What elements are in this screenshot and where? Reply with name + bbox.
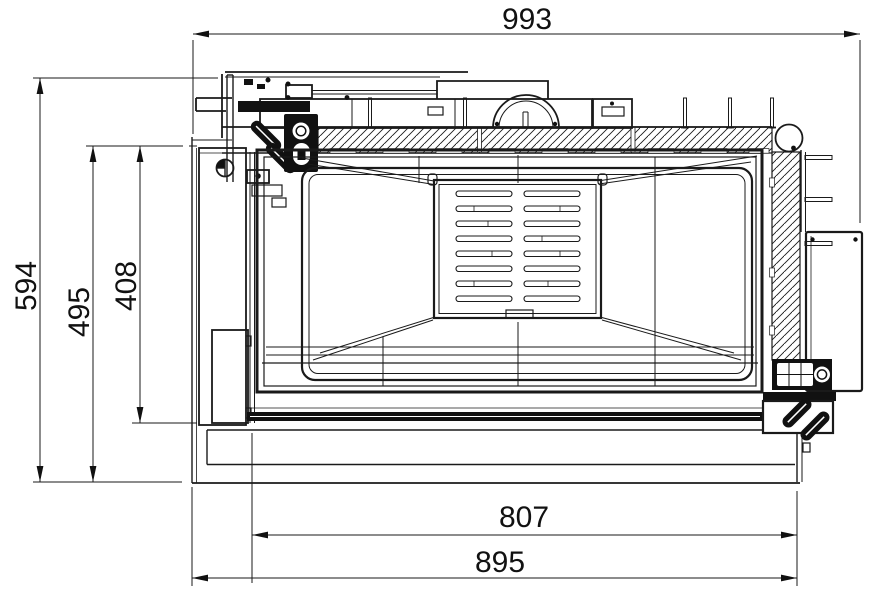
- arrowhead-left: [193, 31, 209, 38]
- arrowhead-top: [90, 146, 97, 162]
- arrowhead-right: [844, 31, 860, 38]
- vent-slot: [428, 107, 443, 115]
- arrowhead-left: [252, 532, 268, 539]
- dim-label-frame-height: 495: [63, 287, 96, 337]
- gas-spring: [286, 82, 438, 99]
- arrowhead-bottom: [37, 466, 44, 482]
- dim-label-total-height: 594: [10, 261, 43, 311]
- screw: [244, 79, 253, 85]
- roller-guide-block: [284, 114, 318, 172]
- front-sill: [247, 408, 763, 421]
- lower-panel: [212, 330, 248, 423]
- glass-door-frame: [302, 168, 752, 380]
- slot-ticks: [474, 206, 560, 287]
- arrowhead-left: [192, 575, 208, 582]
- adjuster-tab: [803, 443, 810, 452]
- dim-label-opening-height: 408: [110, 261, 143, 311]
- firebox-floor: [262, 322, 758, 386]
- block-joint: [478, 128, 482, 152]
- vent-slot: [602, 107, 624, 116]
- latch-grid-box: [772, 359, 832, 390]
- arrowhead-bottom: [137, 407, 144, 423]
- door-frame-column: [199, 148, 255, 425]
- grille-slots: [456, 191, 580, 302]
- dim-base-width: 895: [192, 487, 797, 586]
- screw: [266, 78, 271, 83]
- arrowhead-right: [781, 575, 797, 582]
- arrowhead-bottom: [90, 466, 97, 482]
- right-insulation-column: [770, 152, 801, 360]
- arrowhead-top: [37, 78, 44, 94]
- glass-door-inner: [309, 175, 745, 374]
- dim-label-base-width: 895: [475, 546, 525, 579]
- block-joint: [631, 128, 635, 152]
- dim-total-width: 993: [193, 3, 860, 223]
- dim-frame-height: 495: [63, 146, 197, 482]
- arrowhead-right: [781, 532, 797, 539]
- dim-opening-height: 408: [110, 146, 197, 423]
- dim-label-opening-width: 807: [499, 501, 549, 534]
- rear-air-grille: [428, 174, 607, 318]
- arrowhead-top: [137, 146, 144, 162]
- technical-drawing: 993 594 495 408 807 895: [0, 0, 879, 595]
- base-plinth: [192, 137, 800, 483]
- flue-collar-arc: [493, 95, 559, 128]
- dim-label-total-width: 993: [502, 3, 552, 36]
- screw: [257, 84, 265, 89]
- lift-mechanism-bottom-right: [763, 359, 836, 482]
- section-symbol: [217, 160, 234, 177]
- fireplace-section-drawing: 993 594 495 408 807 895: [0, 0, 879, 595]
